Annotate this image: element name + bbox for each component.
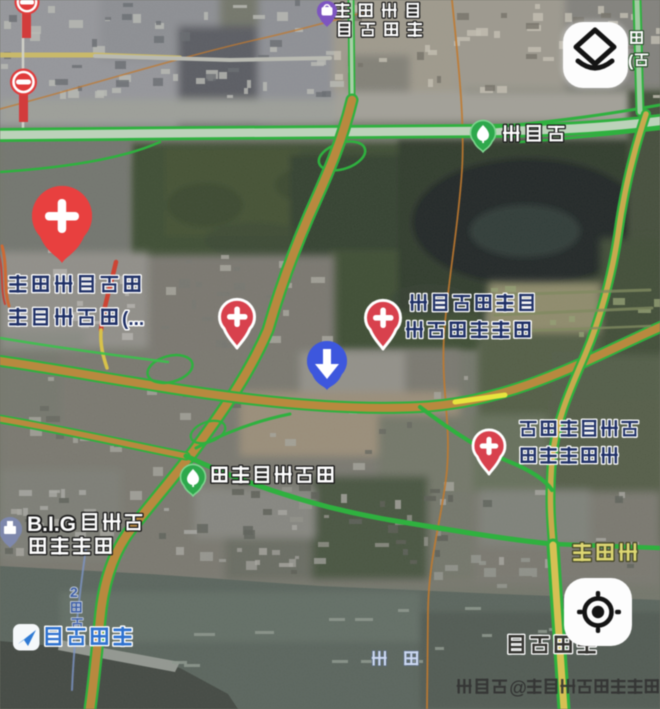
svg-text:(: (: [628, 53, 634, 70]
svg-text:@: @: [509, 678, 527, 698]
svg-text:2: 2: [70, 584, 78, 600]
svg-text:B.I.G: B.I.G: [27, 513, 76, 536]
svg-text:(...: (...: [122, 309, 144, 330]
